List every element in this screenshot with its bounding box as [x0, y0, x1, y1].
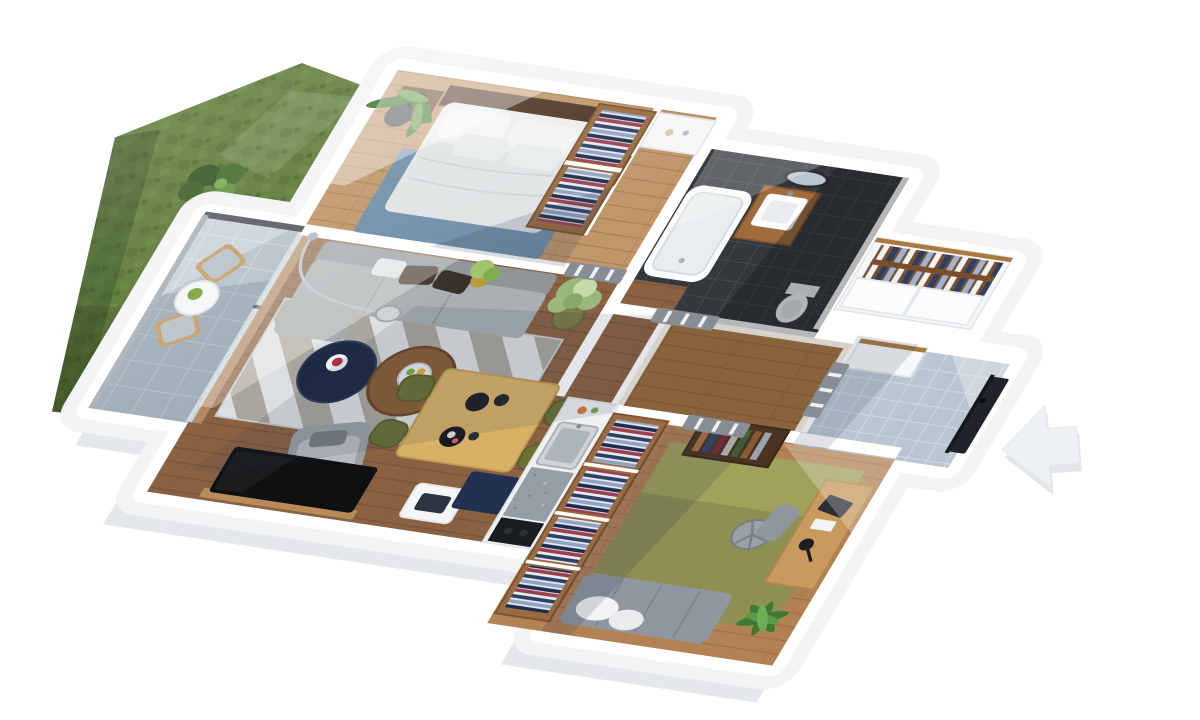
scene-svg [0, 0, 1200, 720]
glare-overlay [0, 0, 1200, 720]
floor-plan-render [0, 0, 1200, 720]
